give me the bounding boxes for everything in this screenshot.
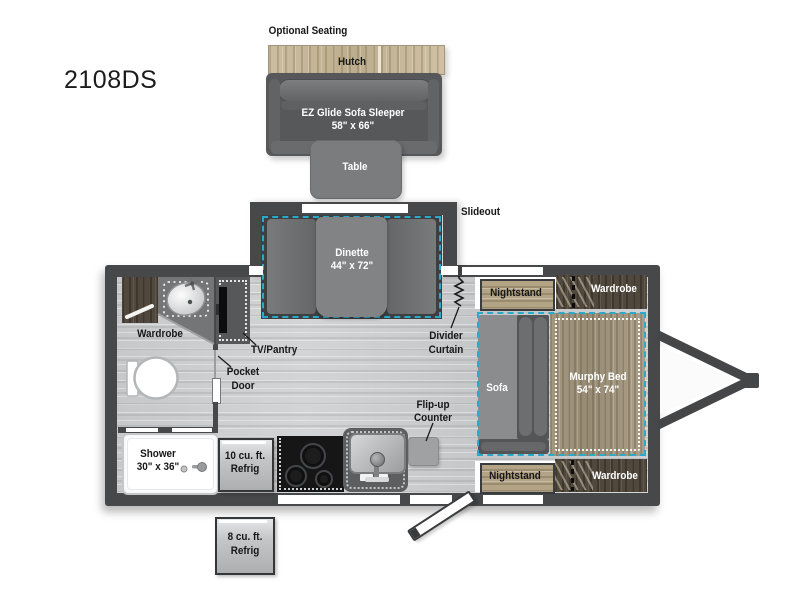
tv-icon (219, 287, 227, 333)
entry-door-opening (410, 495, 452, 504)
fridge-10cuft-label-line1: 10 cu. ft. (225, 450, 265, 462)
optional-seating-title: Optional Seating (269, 25, 348, 37)
nightstand-bottom-label: Nightstand (489, 470, 541, 482)
wardrobe-top-rod-icon (572, 276, 575, 308)
flip-up-counter-label-line1: Flip-up (417, 399, 450, 411)
sofa-sleeper-label-line2: 58" x 66" (332, 120, 374, 132)
sofa-sleeper-backrest (278, 79, 432, 102)
slideout-seal-left (249, 266, 263, 275)
wardrobe-bottom-hanging-clothes-icon (555, 461, 593, 490)
nightstand-top-label: Nightstand (490, 287, 542, 299)
fridge-10cuft-label-line2: Refrig (231, 463, 260, 475)
wardrobe-bottom-rod-icon (571, 460, 574, 491)
bathroom-wall-opening-2 (172, 428, 212, 432)
hitch-a-frame (656, 334, 759, 426)
faucet-handle-icon (365, 477, 389, 482)
bathroom-wall-opening-1 (126, 428, 158, 432)
floorplan-canvas: 2108DS Optional Seating Hutch EZ Glide S… (0, 0, 800, 600)
burner-icon-large (300, 443, 326, 469)
fridge-8cuft-label-line2: Refrig (231, 545, 260, 557)
entry-door-end-cap (410, 527, 421, 538)
tv-pantry-cabinet (216, 277, 250, 344)
hitch-coupler-icon (743, 373, 759, 388)
sink-cabinet (343, 428, 408, 492)
bedroom-sofa-label: Sofa (486, 382, 507, 394)
dinette-bench-right (387, 219, 436, 314)
divider-curtain-label-line1: Divider (429, 330, 463, 342)
tv-pantry-label: TV/Pantry (251, 344, 297, 356)
table-label: Table (342, 161, 367, 173)
wardrobe-top-label: Wardrobe (591, 283, 637, 295)
fridge-8cuft-label-line1: 8 cu. ft. (228, 531, 263, 543)
pocket-door-panel (212, 378, 221, 404)
burner-icon-small (315, 470, 333, 488)
window-opening-kitchen (278, 495, 400, 504)
tv-mount (216, 304, 219, 315)
slideout-seal-right (441, 266, 458, 275)
hutch-label: Hutch (338, 56, 366, 68)
window-opening-bedroom (483, 495, 543, 504)
model-number: 2108DS (64, 66, 157, 95)
sofa-sleeper-label-line1: EZ Glide Sofa Sleeper (302, 107, 405, 119)
burner-icon-medium (285, 465, 307, 487)
divider-curtain-label-line2: Curtain (429, 344, 464, 356)
slideout-window-opening (302, 204, 408, 213)
slideout-label: Slideout (461, 206, 500, 218)
dinette-label-line2: 44" x 72" (331, 260, 373, 272)
pocket-door-track (214, 350, 216, 378)
faucet-head-icon (370, 452, 385, 467)
pocket-door-label-line2: Door (231, 380, 254, 392)
window-opening-top (462, 267, 543, 275)
fridge-10cuft-highlight (222, 441, 266, 444)
dinette-bench-left (267, 219, 316, 314)
shower-label-line1: Shower (140, 448, 176, 460)
fridge-8cuft-highlight (219, 520, 267, 523)
murphy-bed-label-line1: Murphy Bed (569, 371, 626, 383)
wardrobe-bottom-label: Wardrobe (592, 470, 638, 482)
dinette-label-line1: Dinette (335, 247, 369, 259)
flip-up-counter (408, 437, 439, 466)
shower-label-line2: 30" x 36" (137, 461, 179, 473)
cooktop (277, 436, 344, 492)
bathroom-wardrobe (122, 277, 158, 323)
flip-up-counter-label-line2: Counter (414, 412, 452, 424)
murphy-bed-label-line2: 54" x 74" (577, 384, 619, 396)
hutch-seam (378, 46, 381, 74)
bathroom-wardrobe-label: Wardrobe (137, 328, 183, 340)
wardrobe-top-hanging-clothes-icon (556, 277, 594, 307)
pocket-door-label-line1: Pocket (227, 366, 259, 378)
